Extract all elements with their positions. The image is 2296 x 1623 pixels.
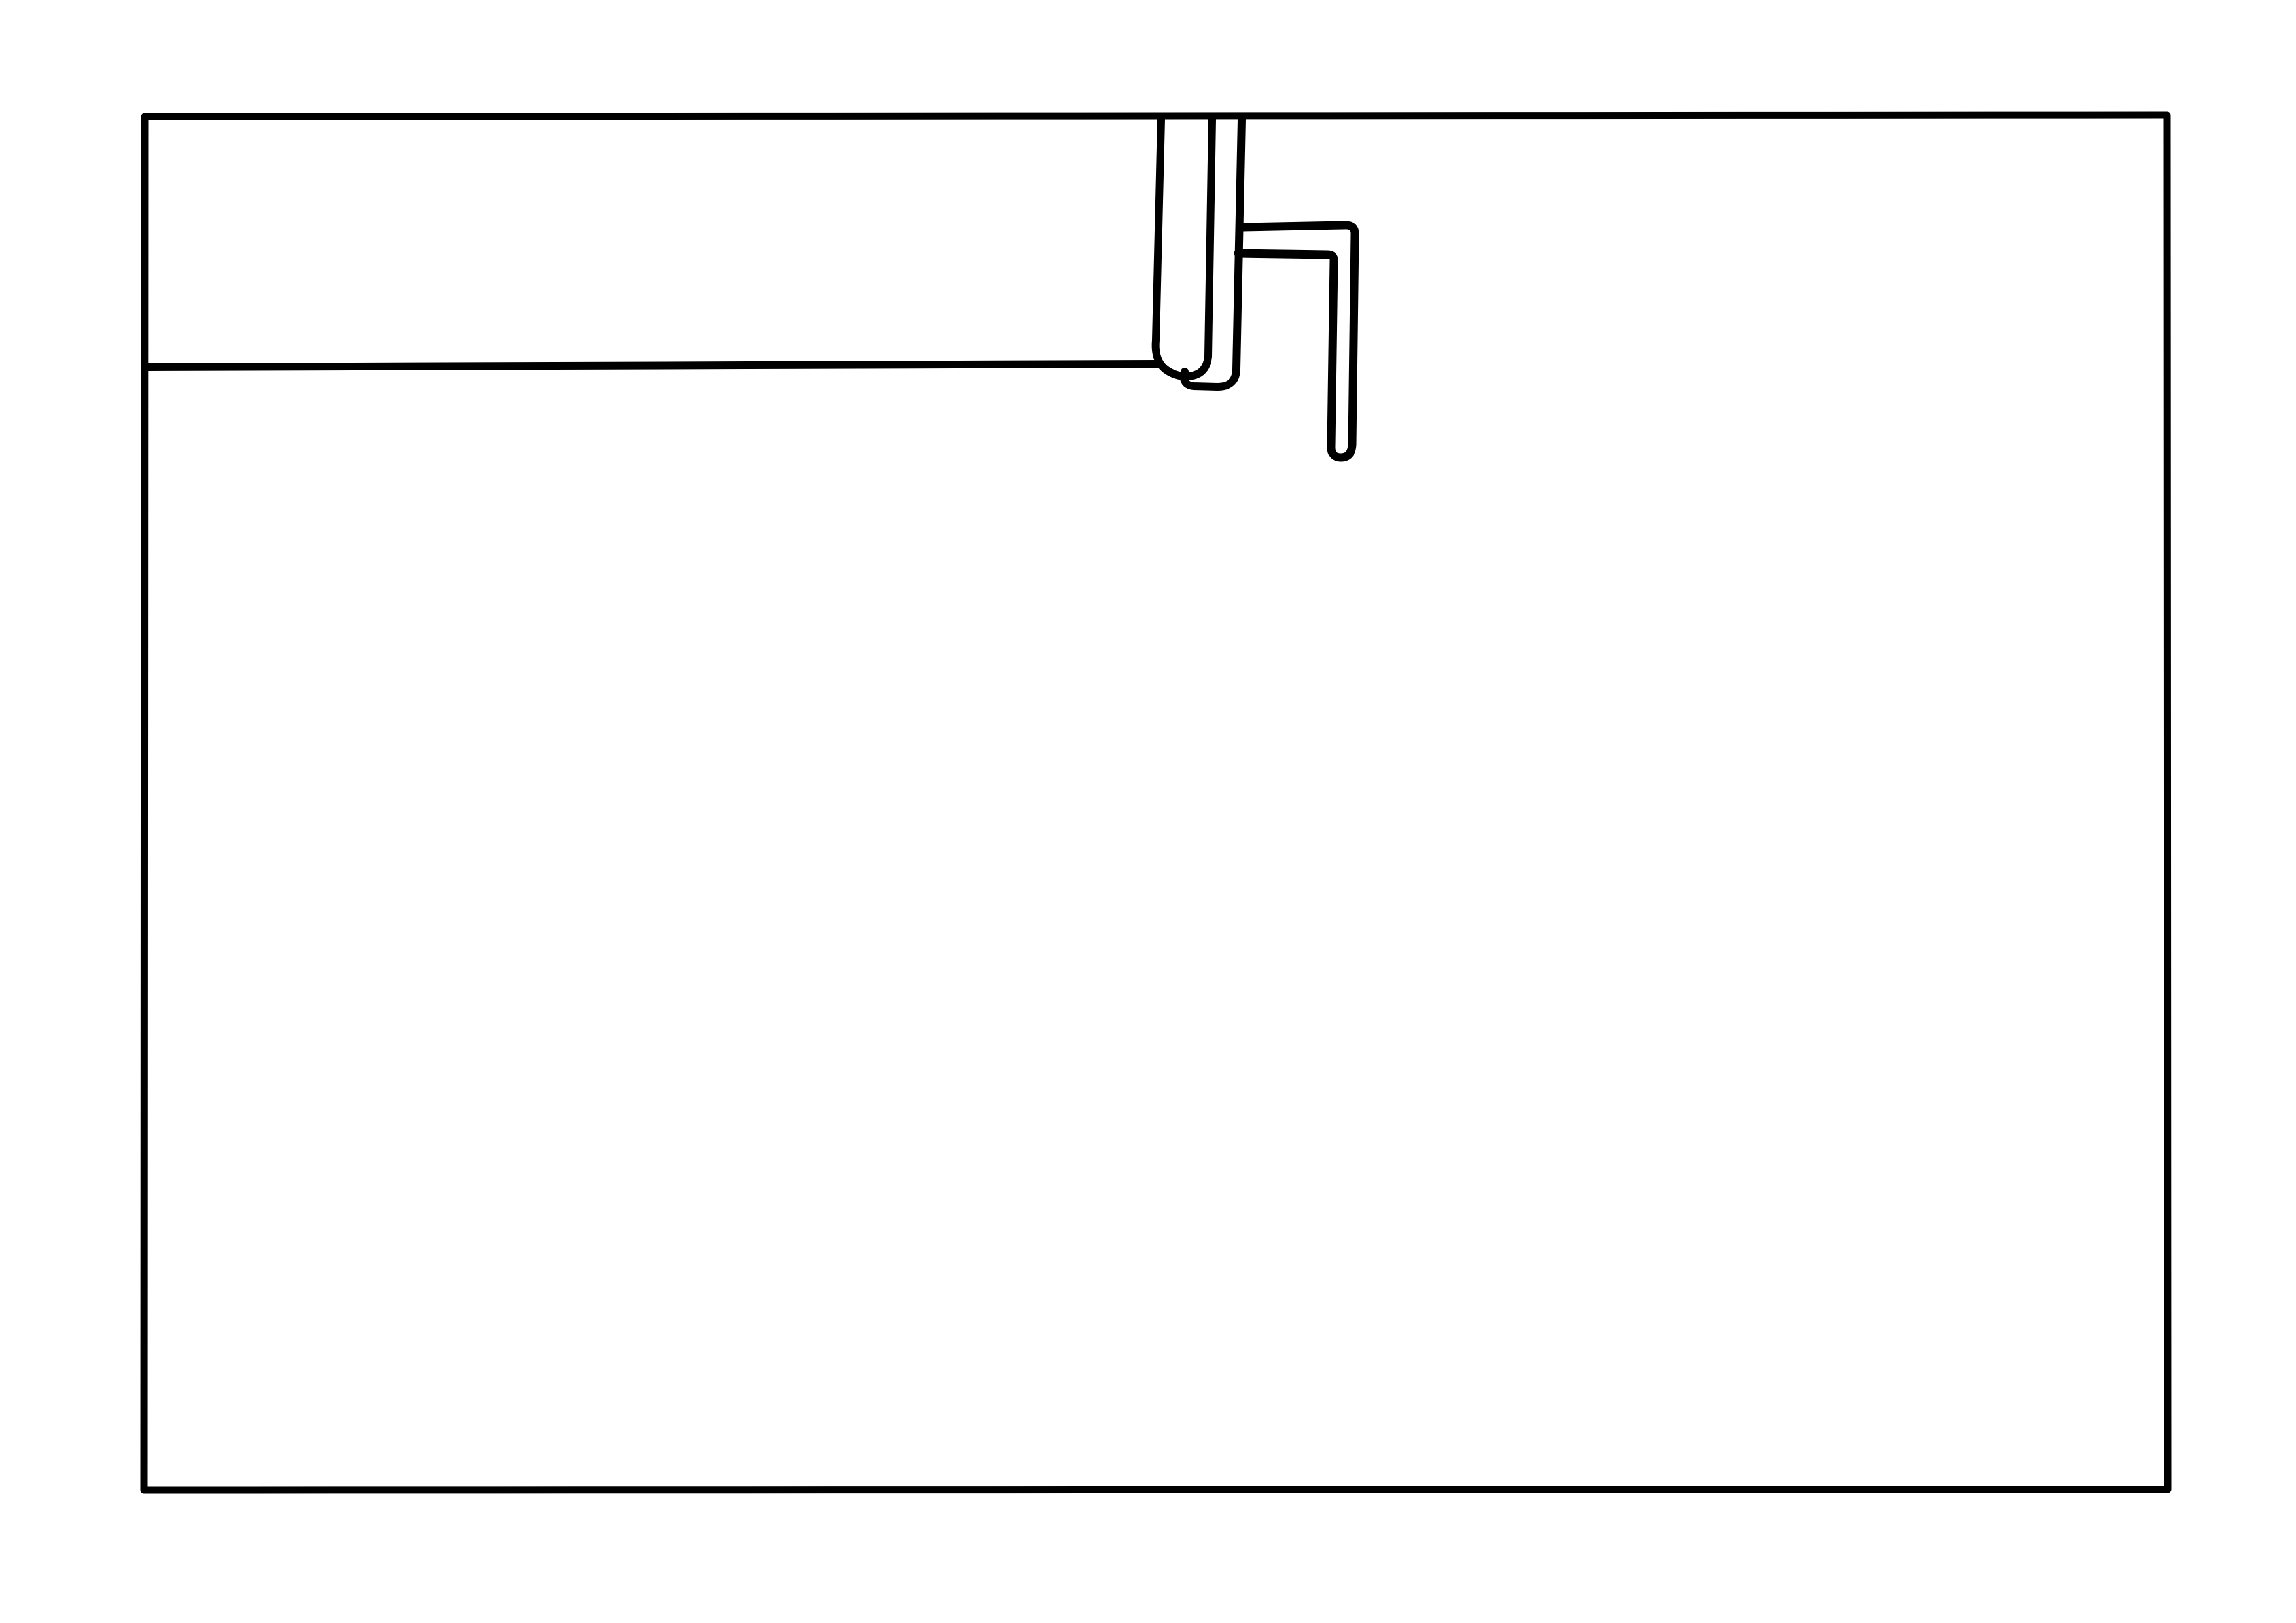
- panel-hook-drawing: [0, 0, 2296, 1623]
- rounded-post: [1156, 119, 1212, 376]
- l-shaped-hook: [1238, 225, 1355, 457]
- rail-line: [149, 364, 1158, 367]
- line-art-canvas: [0, 0, 2296, 1623]
